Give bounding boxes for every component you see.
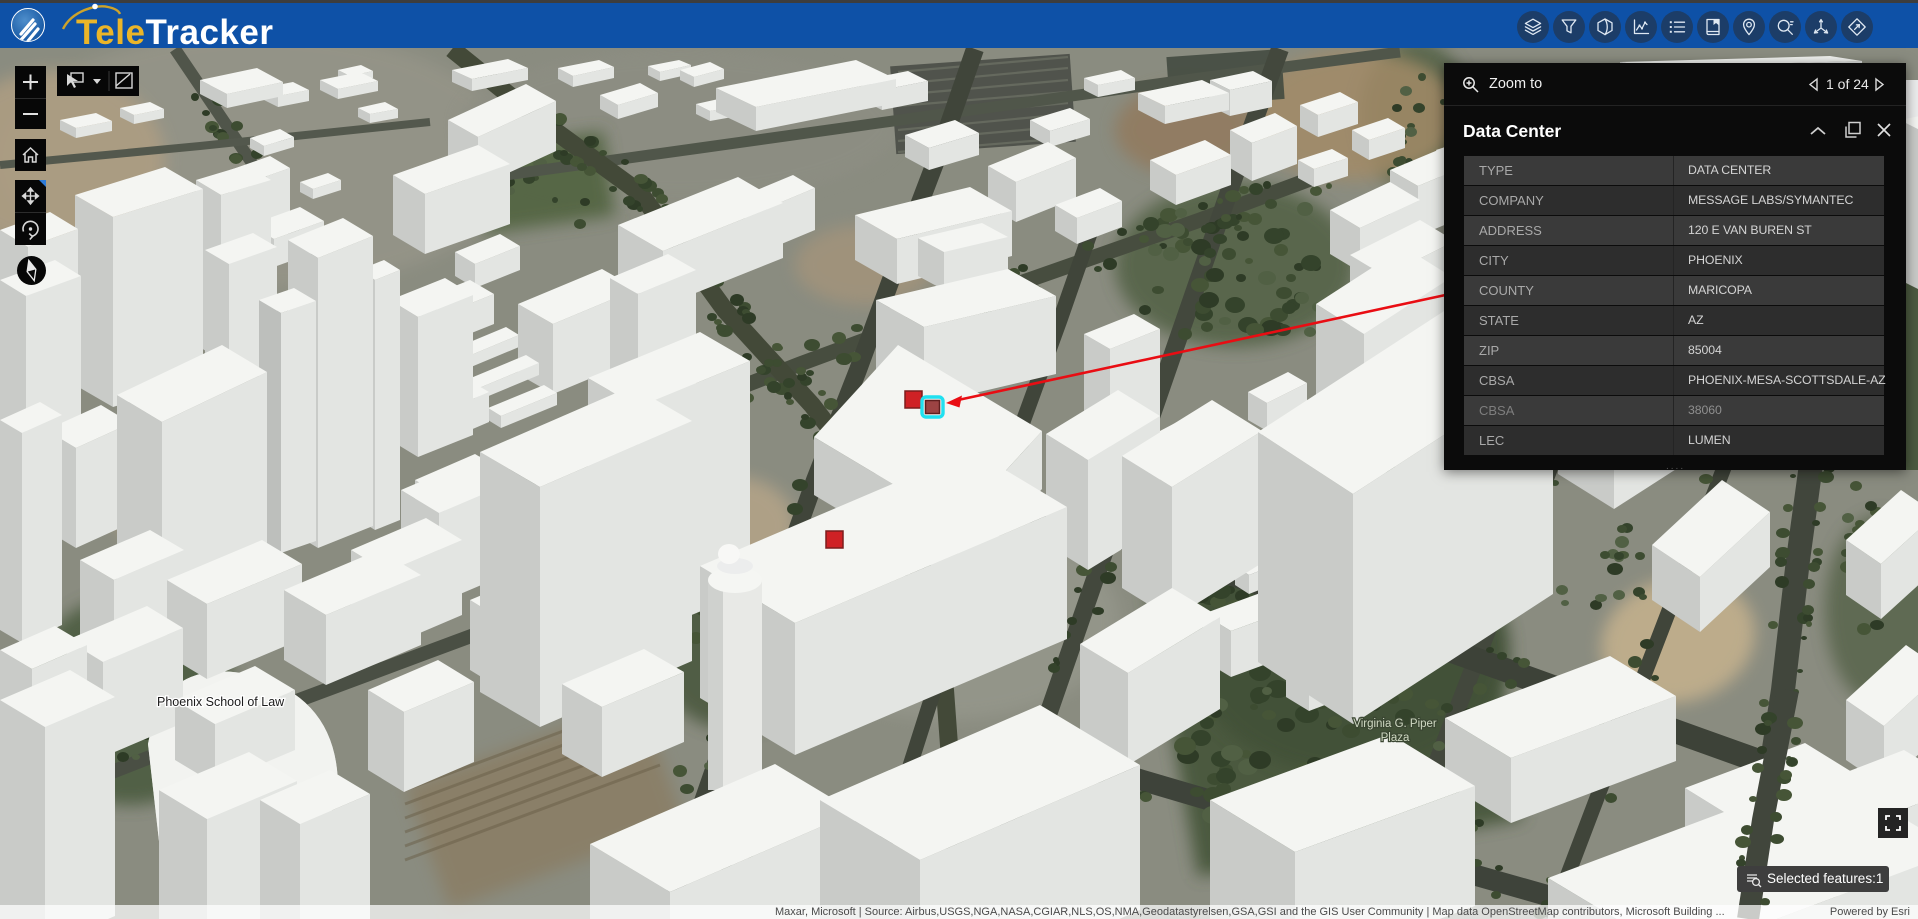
svg-text:Virginia G. Piper: Virginia G. Piper xyxy=(1353,718,1437,730)
svg-text:Phoenix School of Law: Phoenix School of Law xyxy=(157,695,285,709)
svg-text:Plaza: Plaza xyxy=(1381,732,1410,744)
